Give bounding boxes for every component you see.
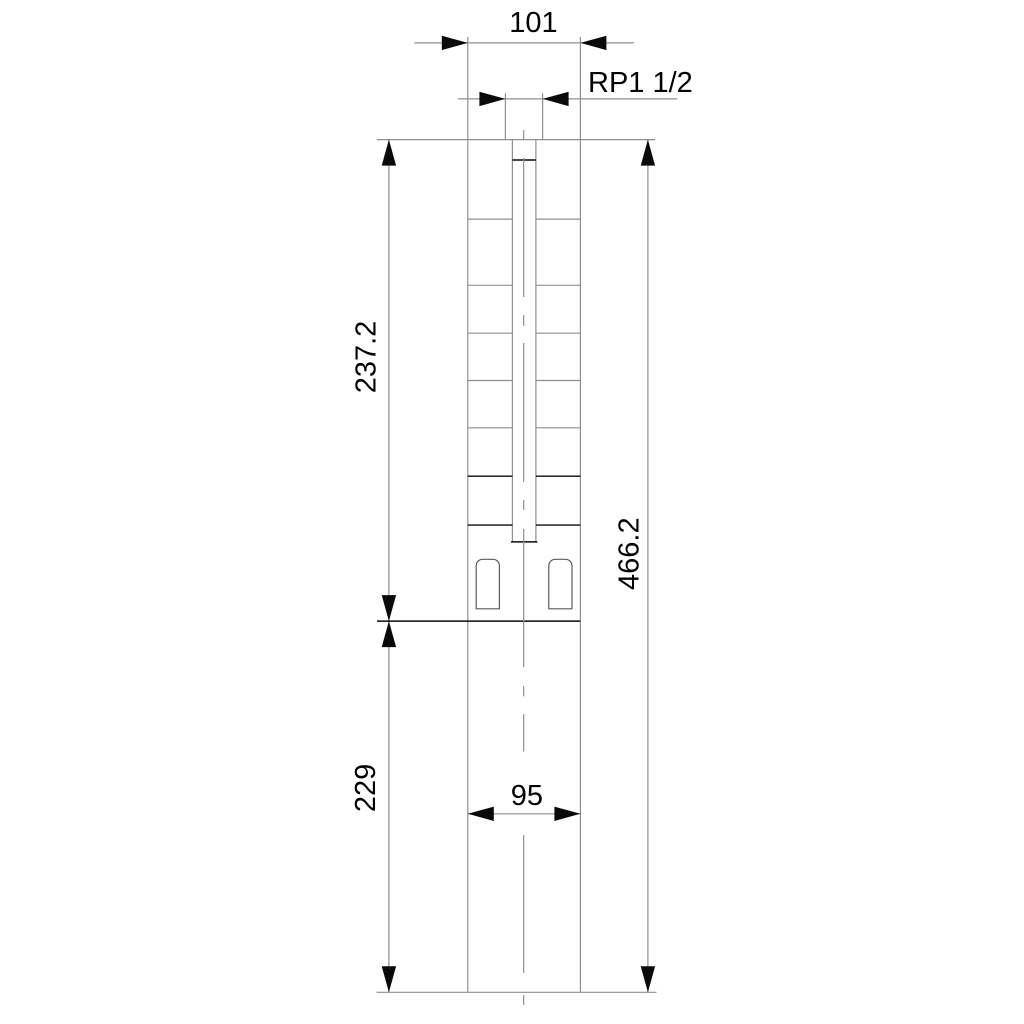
svg-text:237.2: 237.2 — [350, 321, 382, 394]
svg-text:466.2: 466.2 — [613, 517, 645, 590]
svg-text:RP1 1/2: RP1 1/2 — [588, 67, 693, 99]
svg-text:95: 95 — [511, 780, 543, 812]
svg-text:229: 229 — [350, 764, 382, 812]
svg-text:101: 101 — [509, 7, 557, 39]
